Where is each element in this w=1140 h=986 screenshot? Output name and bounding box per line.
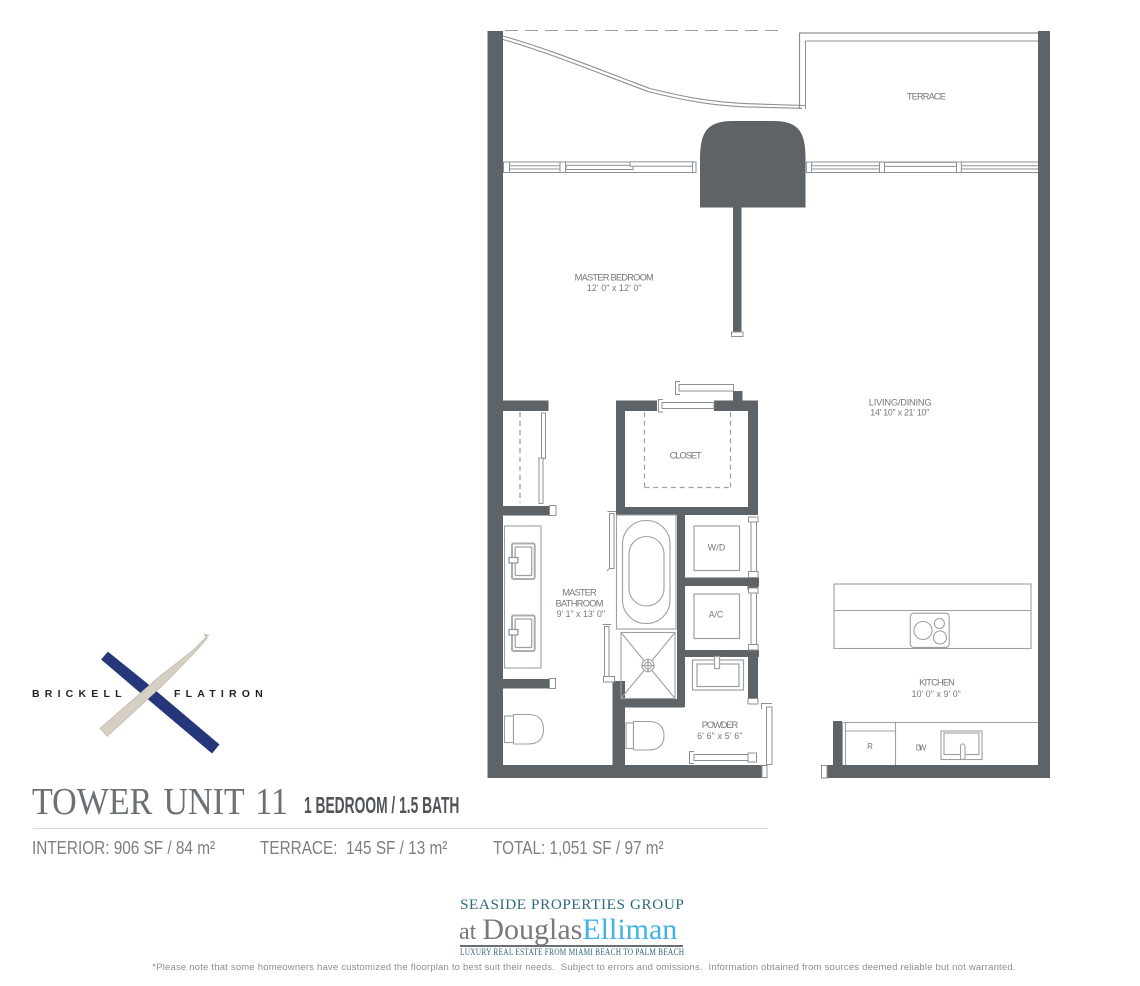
- svg-text:14' 10" x 21' 10": 14' 10" x 21' 10": [870, 407, 929, 417]
- svg-text:LIVING/DINING: LIVING/DINING: [869, 398, 932, 408]
- svg-text:MASTER: MASTER: [562, 587, 597, 597]
- svg-text:KITCHEN: KITCHEN: [919, 678, 955, 688]
- svg-text:POWDER: POWDER: [702, 720, 739, 730]
- svg-text:A/C: A/C: [709, 609, 724, 619]
- svg-text:9' 1" x 13' 0": 9' 1" x 13' 0": [557, 609, 605, 619]
- svg-text:12' 0" x 12' 0": 12' 0" x 12' 0": [587, 283, 642, 293]
- svg-text:R: R: [867, 742, 873, 751]
- svg-text:10' 0" x 9' 0": 10' 0" x 9' 0": [912, 689, 961, 699]
- svg-text:W/D: W/D: [708, 542, 725, 552]
- svg-text:CLOSET: CLOSET: [670, 451, 702, 461]
- svg-text:BATHROOM: BATHROOM: [556, 598, 604, 608]
- svg-text:DW: DW: [916, 744, 927, 753]
- svg-text:MASTER BEDROOM: MASTER BEDROOM: [575, 273, 654, 283]
- svg-text:TERRACE: TERRACE: [907, 92, 946, 102]
- svg-text:6' 6" x 5' 6": 6' 6" x 5' 6": [697, 731, 742, 741]
